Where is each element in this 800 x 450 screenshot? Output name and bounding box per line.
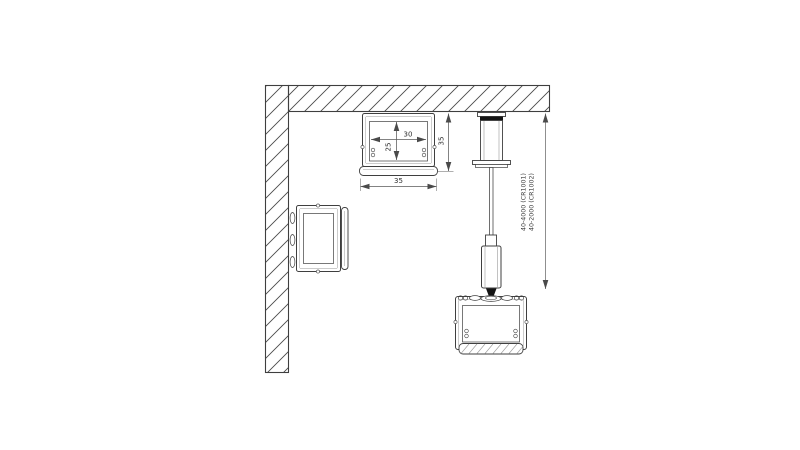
dim-label-outer-height: 35 xyxy=(438,137,446,146)
dim-label-inner-depth: 25 xyxy=(385,143,393,152)
dim-label-inner-width: 30 xyxy=(404,131,413,139)
wall-section xyxy=(266,86,289,373)
technical-drawing: 30 25 35 35 xyxy=(0,0,800,450)
dim-suspension-range: 40-4000 (CR1001) 40-2000 (CR1002) xyxy=(521,114,546,290)
cable-gripper xyxy=(482,235,502,297)
wall-mounted-profile xyxy=(290,204,348,273)
dim-outer-height: 35 xyxy=(438,114,454,172)
suspension-range-label-2: 40-2000 (CR1002) xyxy=(529,173,536,231)
canopy-trim xyxy=(480,117,503,121)
diffuser xyxy=(360,167,438,176)
suspension-cable xyxy=(490,168,494,236)
dim-label-outer-width: 35 xyxy=(394,177,403,185)
suspension-canopy xyxy=(473,113,511,168)
drawing-canvas: 30 25 35 35 xyxy=(0,0,800,450)
diffuser xyxy=(459,344,523,355)
spring-clip-icon xyxy=(290,213,295,224)
ceiling-mounted-profile xyxy=(360,113,438,175)
dim-outer-width: 35 xyxy=(361,177,437,191)
suspended-profile xyxy=(454,296,528,354)
ceiling-section xyxy=(289,86,550,112)
suspension-range-label-1: 40-4000 (CR1001) xyxy=(521,173,528,231)
